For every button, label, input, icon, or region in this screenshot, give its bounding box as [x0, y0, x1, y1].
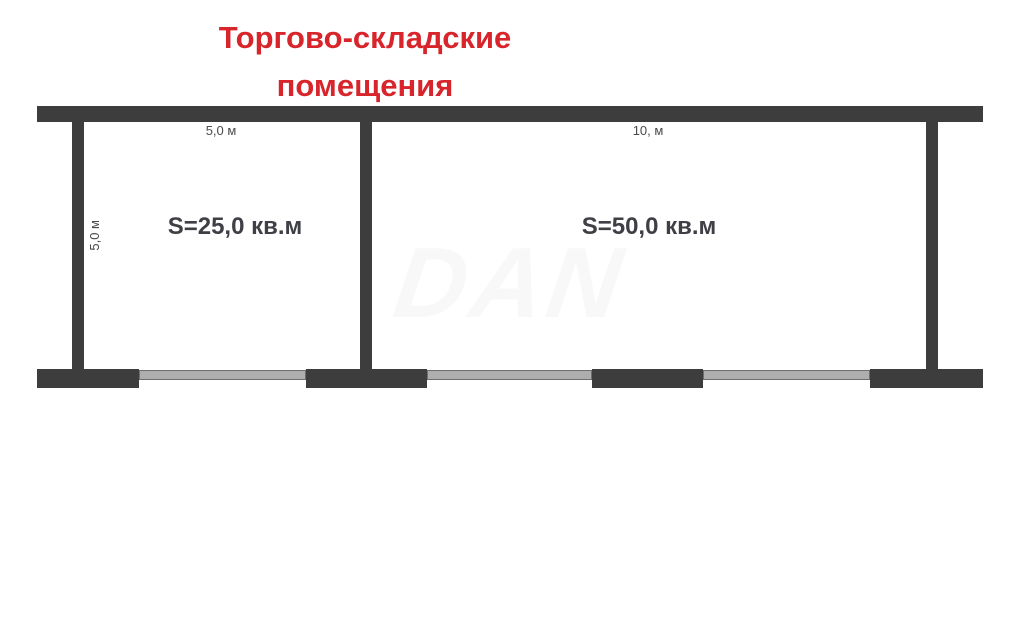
dimension-room2-width: 10, м — [598, 123, 698, 138]
dimension-room1-width: 5,0 м — [171, 123, 271, 138]
wall-left — [72, 122, 84, 370]
window-3 — [703, 370, 870, 380]
wall-partition — [360, 122, 372, 370]
watermark: DAN — [362, 228, 657, 338]
wall-right — [926, 122, 938, 370]
page-title-line1: Торгово-складские — [150, 14, 580, 62]
wall-bottom-segment-4 — [870, 369, 983, 388]
room1-area-label: S=25,0 кв.м — [100, 213, 370, 241]
window-2 — [427, 370, 592, 380]
wall-bottom-segment-1 — [37, 369, 139, 388]
page-title-line2: помещения — [150, 62, 580, 110]
room2-area-label: S=50,0 кв.м — [372, 213, 926, 241]
window-1 — [139, 370, 306, 380]
floor-plan-page: Торгово-складские помещения DAN 5,0 м 10… — [0, 0, 1024, 622]
wall-top — [37, 106, 983, 122]
wall-bottom-segment-3 — [592, 369, 703, 388]
wall-bottom-segment-2 — [306, 369, 427, 388]
page-title: Торгово-складские помещения — [150, 14, 580, 110]
